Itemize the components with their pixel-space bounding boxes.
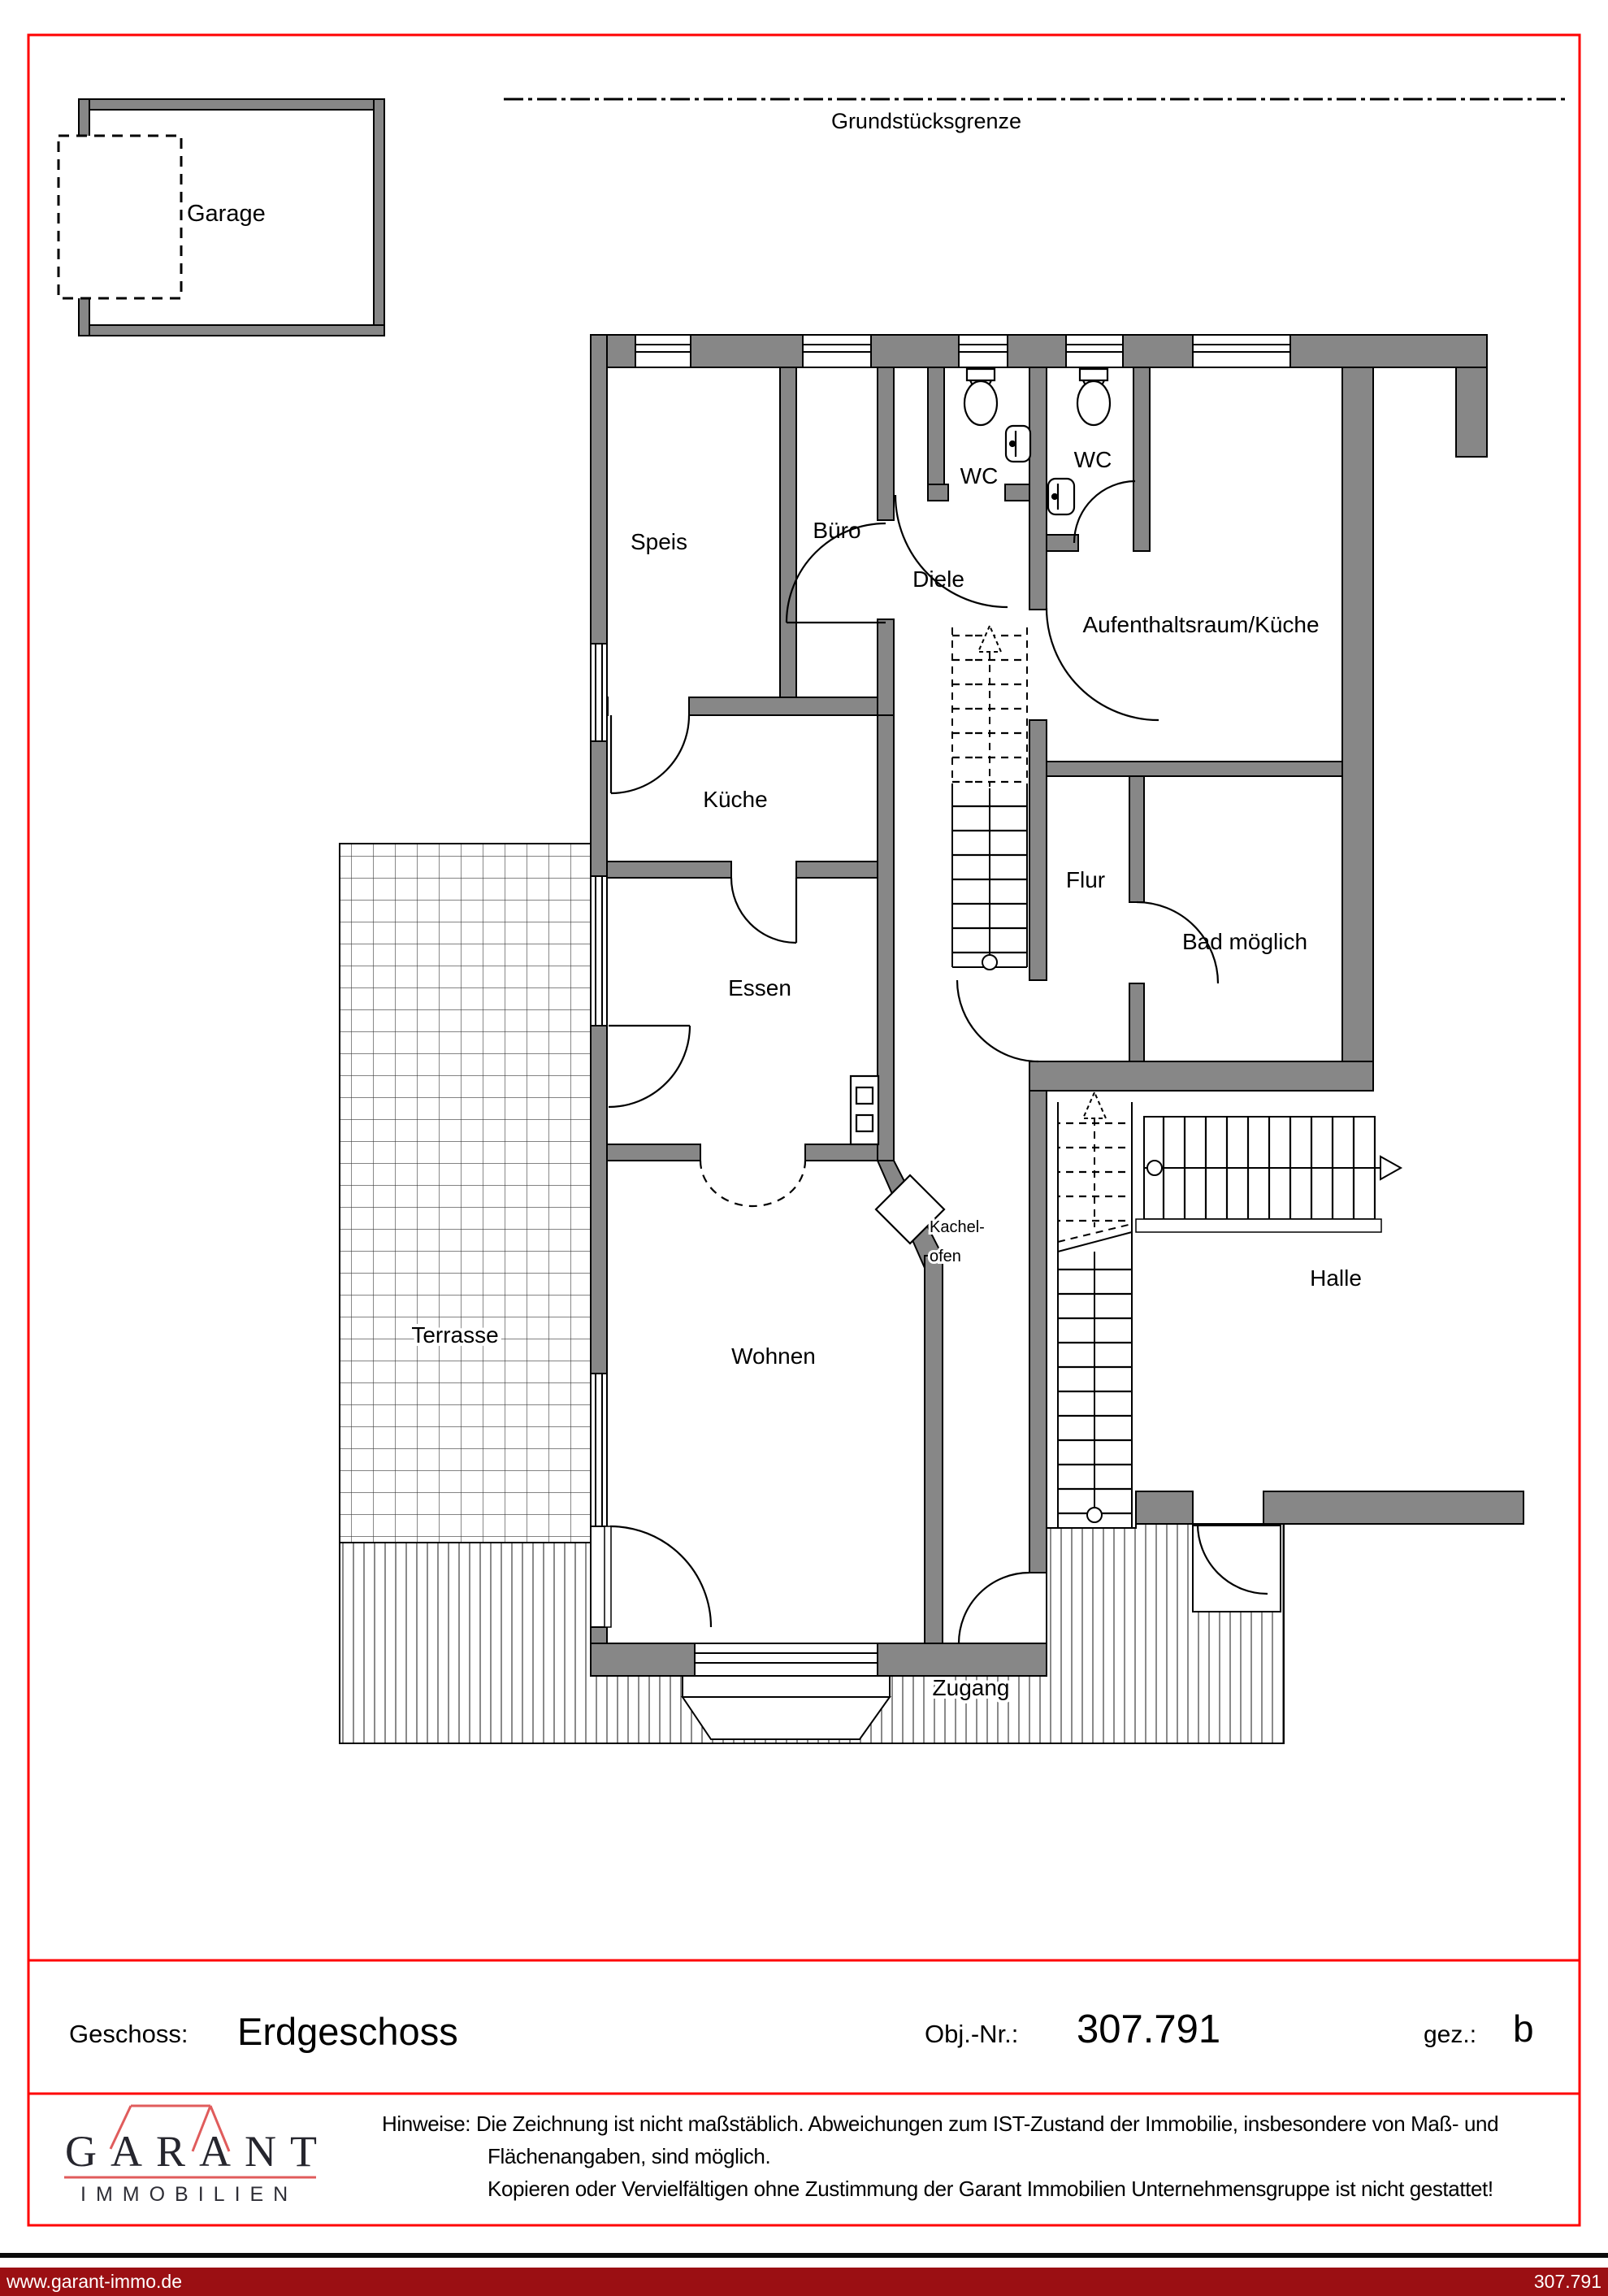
label-halle: Halle [1310, 1265, 1362, 1291]
notes-line-2: Flächenangaben, sind möglich. [382, 2144, 1584, 2177]
notes-text-2: Flächenangaben, sind möglich. [488, 2144, 770, 2168]
stair-diele [952, 626, 1027, 970]
label-kachelofen-2: ofen [930, 1248, 961, 1265]
terrace-area [340, 844, 591, 1543]
notes-text-3: Kopieren oder Vervielfältigen ohne Zusti… [488, 2177, 1493, 2201]
label-terrasse: Terrasse [411, 1322, 498, 1348]
label-wc2: WC [1074, 447, 1112, 472]
door-wc2 [1074, 481, 1135, 543]
floorplan-drawing: Grundstücksgrenze Garage Speis Büro WC W… [0, 0, 1608, 2296]
door-corridor-exit [959, 1573, 1029, 1643]
window-top-aufenthaltsraum [1193, 335, 1290, 367]
door-kueche-essen [731, 878, 796, 943]
sink-wc2 [1048, 479, 1074, 514]
footer-bar: www.garant-immo.de 307.791 [0, 2268, 1608, 2296]
window-top-speis [635, 335, 691, 367]
porch-side [1193, 1526, 1281, 1612]
toilet-wc2 [1077, 369, 1110, 425]
toilet-wc1 [964, 369, 997, 425]
floorplan-page: Grundstücksgrenze Garage Speis Büro WC W… [0, 0, 1608, 2296]
label-flur: Flur [1066, 867, 1105, 892]
label-aufenthaltsraum: Aufenthaltsraum/Küche [1082, 612, 1319, 637]
footer-object-number: 307.791 [1534, 2271, 1601, 2293]
drawn-by-label: gez.: [1424, 2023, 1476, 2047]
floor-label: Geschoss: [69, 2021, 188, 2046]
notes-line-1: Hinweise: Die Zeichnung ist nicht maßstä… [382, 2112, 1584, 2144]
window-top-wc2 [1066, 335, 1123, 367]
door-essen-terrace [609, 1026, 690, 1107]
window-wohnen-bottom [683, 1643, 890, 1697]
label-grundstuecksgrenze: Grundstücksgrenze [831, 109, 1021, 133]
brand-logo-subtitle: IMMOBILIEN [80, 2185, 297, 2205]
label-diele: Diele [912, 566, 964, 592]
label-wc1: WC [960, 463, 999, 488]
porch-front [683, 1697, 890, 1739]
window-wohnen-left [591, 1374, 607, 1526]
label-bad: Bad möglich [1182, 929, 1307, 954]
footer-website: www.garant-immo.de [7, 2271, 182, 2293]
notes-line-3: Kopieren oder Vervielfältigen ohne Zusti… [382, 2177, 1584, 2209]
label-kachelofen-1: Kachel- [930, 1218, 985, 1236]
door-flur [957, 980, 1038, 1061]
window-top-wc1 [959, 335, 1008, 367]
floor-value: Erdgeschoss [237, 2012, 458, 2051]
notes-label: Hinweise: [382, 2112, 470, 2136]
notes-text-1: Die Zeichnung ist nicht maßstäblich. Abw… [476, 2112, 1498, 2136]
object-number-value: 307.791 [1077, 2010, 1220, 2050]
window-kueche-left [591, 644, 607, 741]
door-leaf-wohnen [605, 1526, 611, 1627]
notes-block: Hinweise: Die Zeichnung ist nicht maßstä… [382, 2112, 1584, 2209]
footer-separator-line [0, 2253, 1608, 2258]
label-essen: Essen [728, 975, 791, 1000]
label-speis: Speis [631, 529, 687, 554]
label-garage: Garage [187, 201, 266, 227]
stair-flur [1136, 1117, 1401, 1232]
opening-essen-wohnen-dashed [700, 1161, 805, 1206]
object-number-label: Obj.-Nr.: [925, 2021, 1018, 2046]
terrace-door-glazing [591, 876, 607, 1026]
stair-halle [1058, 1092, 1132, 1528]
label-wohnen: Wohnen [731, 1343, 816, 1369]
carport-dashed-outline [59, 136, 181, 298]
label-zugang: Zugang [933, 1675, 1010, 1700]
door-wohnen-terrace [610, 1526, 711, 1627]
label-kueche: Küche [703, 787, 767, 812]
window-top-buero [803, 335, 871, 367]
drawn-by-value: b [1513, 2010, 1534, 2047]
door-speis [611, 715, 689, 793]
label-buero: Büro [813, 518, 860, 543]
sink-wc1 [1006, 426, 1030, 462]
brand-logo-name: GARANT [65, 2129, 331, 2173]
